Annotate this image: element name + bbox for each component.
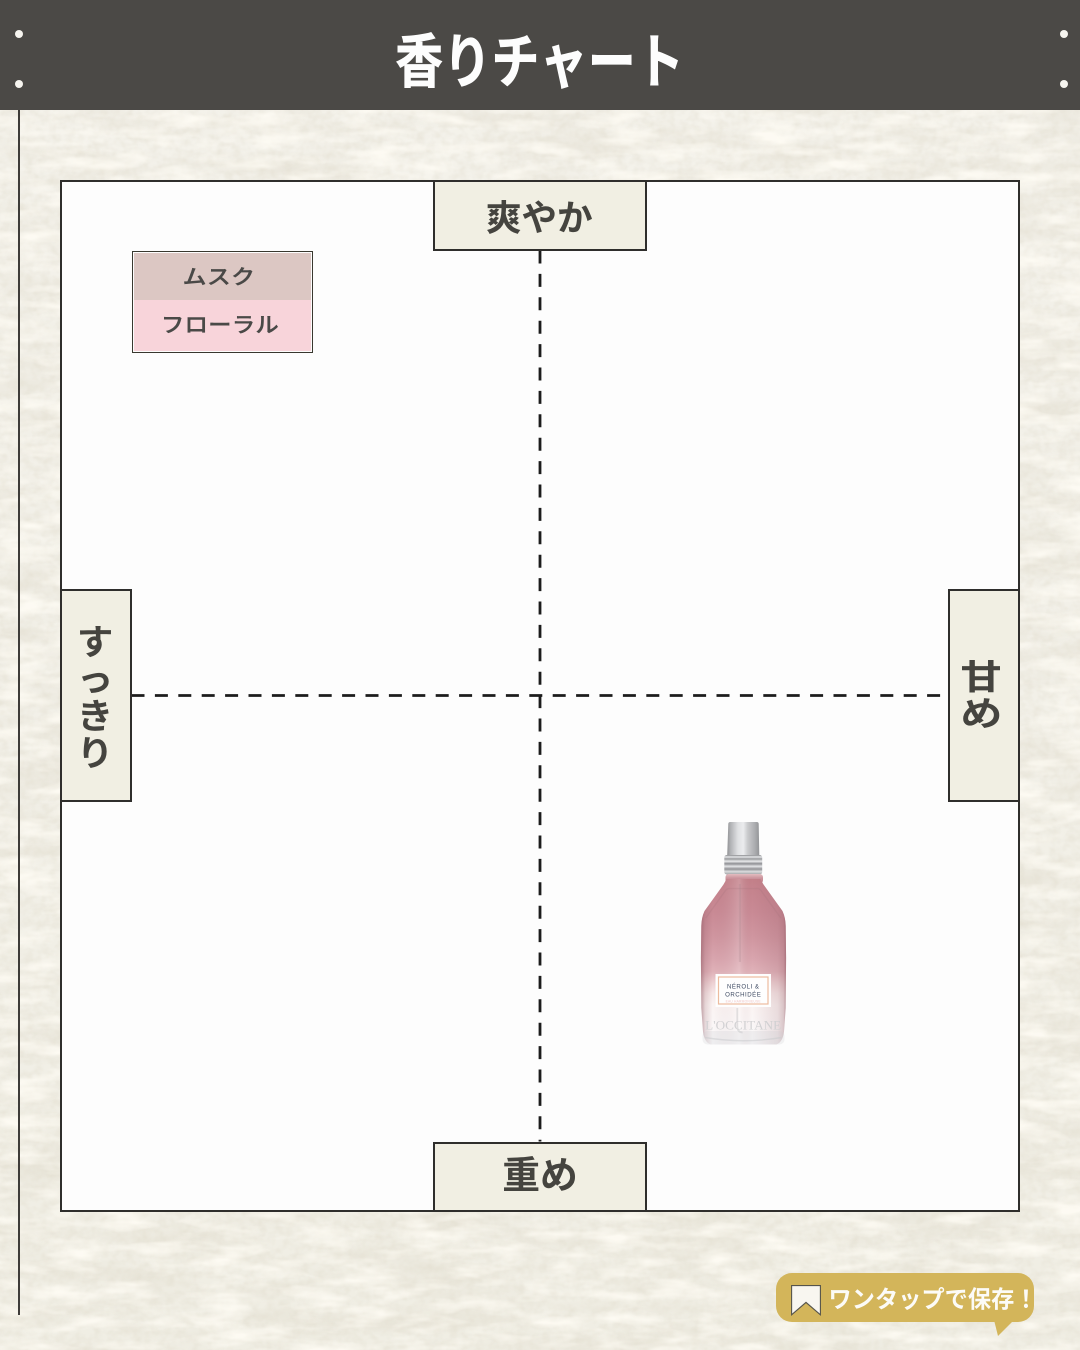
svg-text:EAU HARMONIEUSE: EAU HARMONIEUSE bbox=[726, 999, 762, 1003]
svg-text:NÉROLI &: NÉROLI & bbox=[727, 984, 759, 991]
svg-text:L'OCCITANE: L'OCCITANE bbox=[705, 1019, 781, 1033]
svg-text:ORCHIDÉE: ORCHIDÉE bbox=[725, 992, 761, 999]
